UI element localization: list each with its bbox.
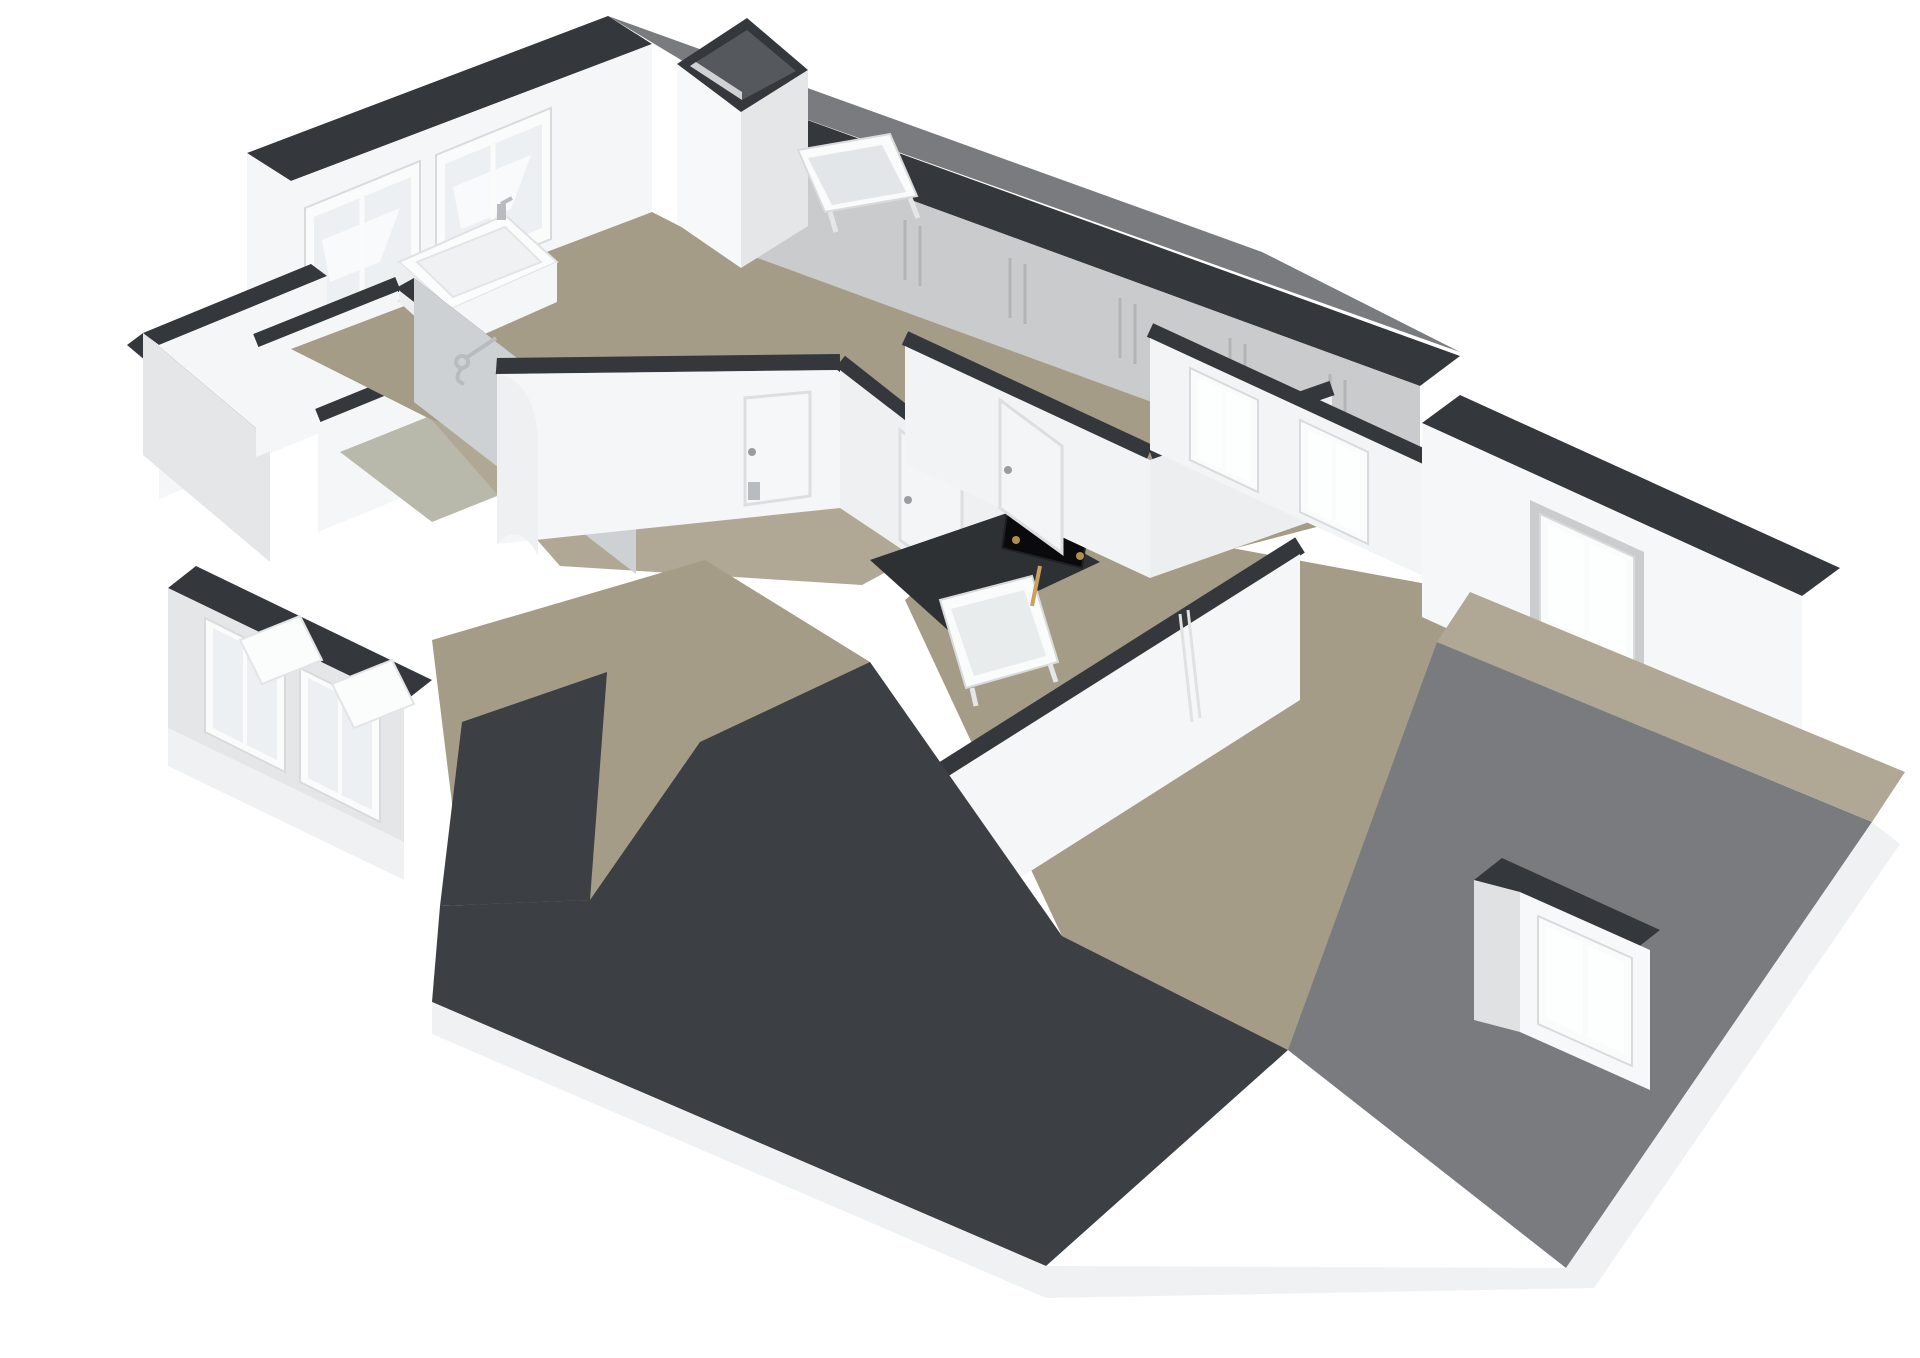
tv-brass-foot xyxy=(1076,552,1084,560)
fascia-south-corner xyxy=(1046,1266,1594,1298)
dormer-cheek xyxy=(1474,880,1520,1032)
southwest-facade xyxy=(168,566,432,880)
door-handle xyxy=(904,496,912,504)
door-handle xyxy=(748,448,756,456)
wall-switch xyxy=(748,482,760,500)
chimney xyxy=(677,18,808,268)
tv-brass-foot xyxy=(1012,536,1020,544)
door-handle xyxy=(1004,466,1012,474)
floorplan-canvas xyxy=(0,0,1920,1358)
floorplan-3d-render xyxy=(0,0,1920,1358)
